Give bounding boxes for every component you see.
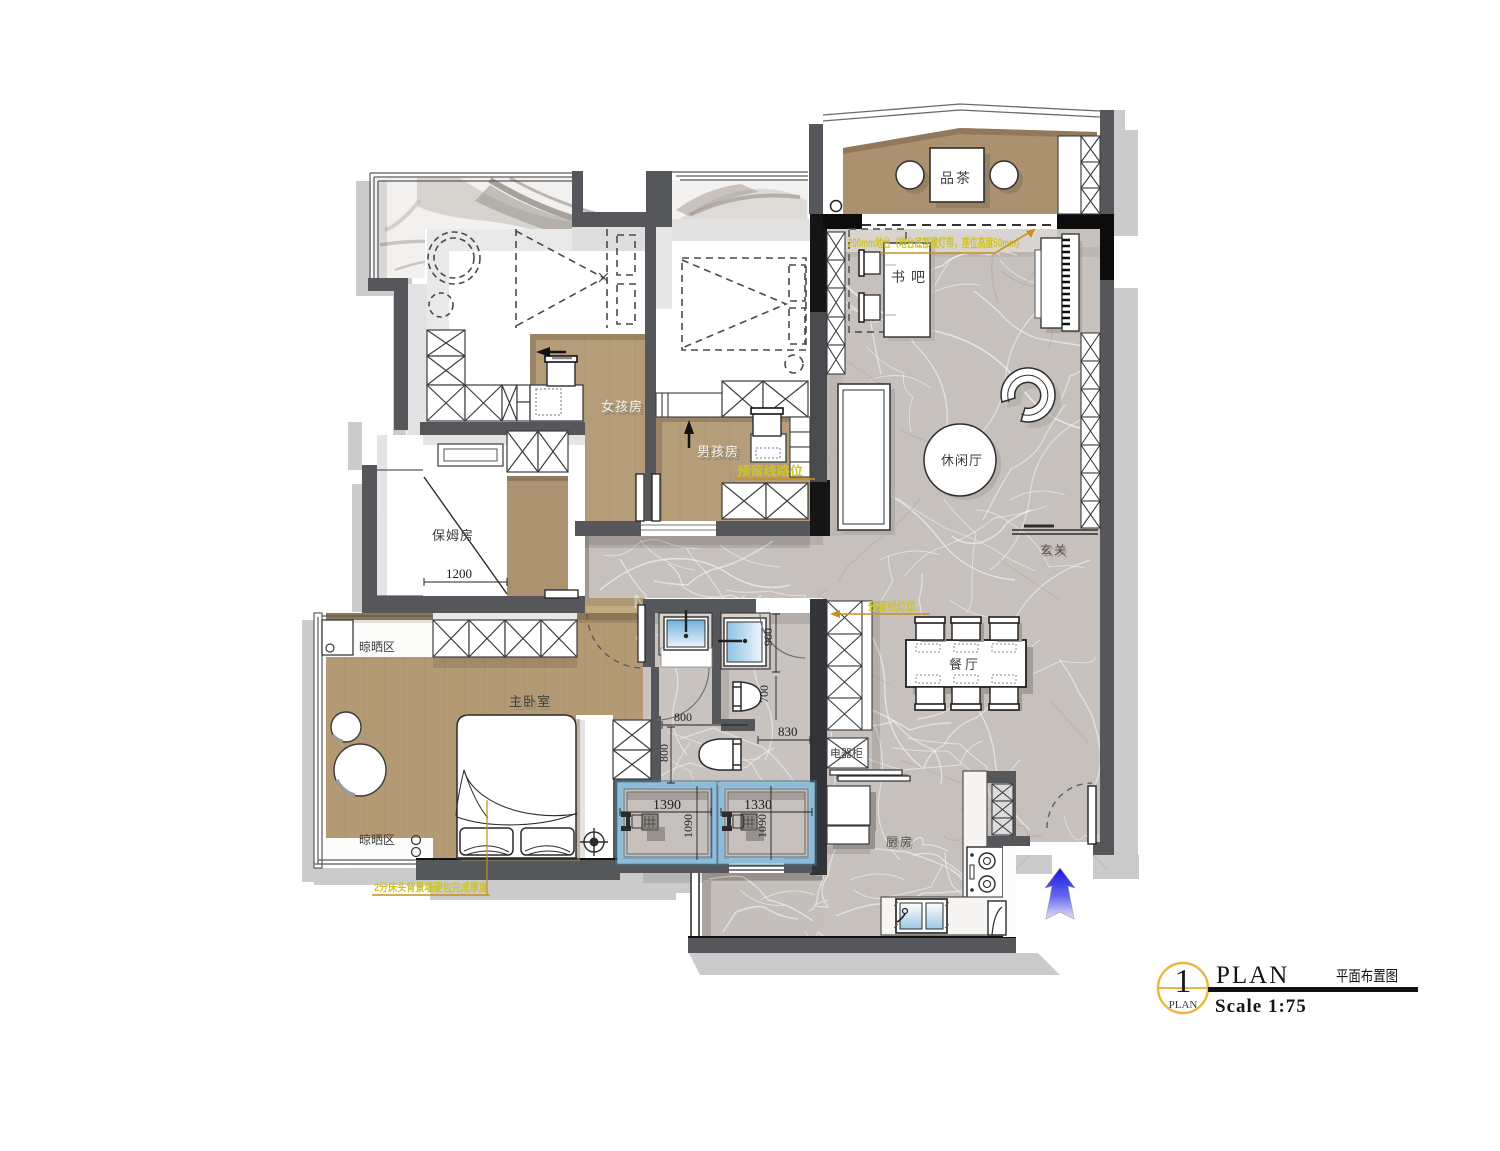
svg-text:男孩房: 男孩房 <box>697 444 739 459</box>
svg-text:预留线灯位: 预留线灯位 <box>868 599 916 613</box>
svg-text:PLAN: PLAN <box>1216 962 1289 989</box>
svg-text:800: 800 <box>674 710 692 724</box>
svg-text:电器柜: 电器柜 <box>830 747 863 760</box>
svg-text:1390: 1390 <box>653 798 681 813</box>
svg-text:PLAN: PLAN <box>1169 999 1198 1011</box>
svg-text:晾晒区: 晾晒区 <box>359 639 395 654</box>
svg-text:2分床头背景墙硬包完成厚度: 2分床头背景墙硬包完成厚度 <box>374 880 489 894</box>
svg-text:Scale 1:75: Scale 1:75 <box>1215 996 1307 1017</box>
svg-text:700: 700 <box>757 685 771 703</box>
svg-text:1200: 1200 <box>446 566 472 581</box>
svg-text:200mm地台（地台底部藏灯带，座位高度50mm）: 200mm地台（地台底部藏灯带，座位高度50mm） <box>848 235 1024 250</box>
svg-text:1090: 1090 <box>755 814 769 838</box>
svg-text:平面布置图: 平面布置图 <box>1336 968 1398 985</box>
svg-text:主卧室: 主卧室 <box>509 694 551 709</box>
svg-text:800: 800 <box>657 744 671 762</box>
svg-text:女孩房: 女孩房 <box>601 399 643 414</box>
svg-text:830: 830 <box>778 724 798 739</box>
svg-text:晾晒区: 晾晒区 <box>359 832 395 847</box>
svg-text:休闲厅: 休闲厅 <box>941 453 983 468</box>
svg-text:1090: 1090 <box>681 814 695 838</box>
svg-text:书吧: 书吧 <box>891 269 931 285</box>
svg-text:厨房: 厨房 <box>886 834 914 849</box>
svg-text:1: 1 <box>1175 963 1192 1000</box>
svg-text:预留线路位: 预留线路位 <box>737 463 803 478</box>
svg-text:1330: 1330 <box>744 798 772 813</box>
svg-text:900: 900 <box>761 628 775 646</box>
svg-text:餐厅: 餐厅 <box>949 657 981 672</box>
svg-text:品茶: 品茶 <box>940 170 972 186</box>
svg-text:玄关: 玄关 <box>1040 542 1068 557</box>
svg-text:保姆房: 保姆房 <box>432 528 474 543</box>
